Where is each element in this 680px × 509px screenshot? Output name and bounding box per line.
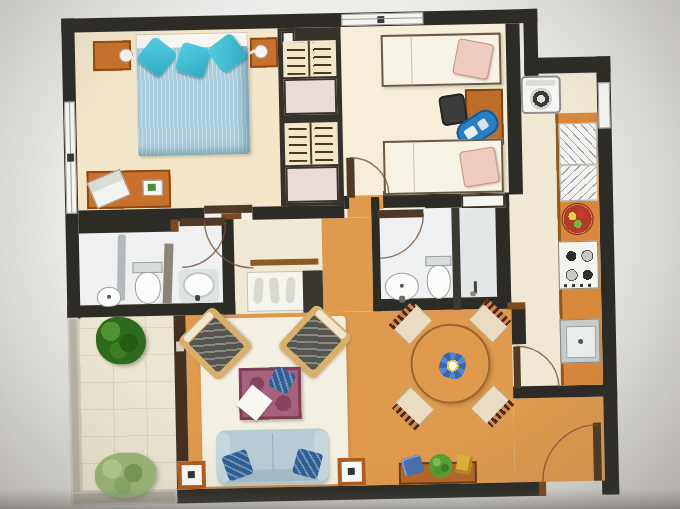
dish-rack-2 <box>559 165 598 202</box>
bath-divider <box>163 243 174 303</box>
wall-bedroom1-bottom-b <box>252 205 344 220</box>
sink-basin <box>566 326 597 359</box>
wardrobe-unit2-shelf <box>285 166 339 203</box>
navy-cushion <box>267 365 297 395</box>
toilet-bathroom2 <box>424 256 451 301</box>
shower-fixture-icon <box>469 281 481 295</box>
hanger-rail-icon <box>289 126 308 162</box>
stove <box>558 241 599 290</box>
kitchen-walkway-ext <box>509 194 525 308</box>
blanket-fold-line <box>411 36 413 84</box>
sofa <box>216 428 329 484</box>
laptop-icon <box>87 169 131 209</box>
double-bed <box>136 32 251 156</box>
tray-faucet-icon <box>195 295 200 301</box>
faucet-icon <box>399 296 405 303</box>
door-leaf-bathroom1 <box>179 217 225 226</box>
wardrobe-unit1-shelf <box>284 78 338 115</box>
toilet-bowl <box>135 272 162 305</box>
wall-kitchen-bottom <box>513 384 617 398</box>
single-bed-bottom <box>383 139 504 196</box>
toilet-bathroom1 <box>131 262 162 305</box>
desk-bedroom1 <box>86 170 171 210</box>
wall-bathroom1-right <box>221 218 235 314</box>
dish-rack-1 <box>559 123 598 166</box>
shoe-icon <box>269 277 280 304</box>
shoe-icon <box>285 277 296 304</box>
drain-dot <box>578 339 583 344</box>
notebook-green-dot <box>148 184 156 191</box>
pillow-pink <box>452 38 494 80</box>
flower-centerpiece <box>436 349 468 381</box>
hanger-rail-icon <box>313 42 332 74</box>
corridor-floor <box>321 217 373 312</box>
trim-bathroom1-opening <box>170 219 178 231</box>
door-leaf-bedroom2 <box>346 158 355 198</box>
kitchen-sink <box>560 319 601 364</box>
shoe-rack <box>247 271 306 312</box>
trim-entry-left <box>539 482 546 496</box>
wardrobe-column <box>277 27 344 206</box>
window-bedroom2 <box>341 12 423 26</box>
bag-stripe <box>477 118 490 131</box>
coffee-table <box>239 367 302 420</box>
washing-machine <box>521 75 562 114</box>
white-cloth <box>236 385 273 422</box>
sofa-seat-split <box>272 433 274 471</box>
washer-controls <box>526 79 556 86</box>
stove-knobs <box>564 284 594 288</box>
single-bed-top <box>381 33 502 88</box>
round-shower-tray <box>178 269 219 304</box>
wardrobe-unit1-hangers <box>283 40 337 77</box>
niche-above-shower <box>461 194 505 209</box>
rail-line <box>309 123 312 165</box>
wall-bottom-right-stub <box>602 480 619 494</box>
trim-kitchen-door <box>507 302 525 309</box>
bag-stripe <box>463 125 479 140</box>
lamp-icon <box>254 44 268 58</box>
door-leaf-entry <box>593 423 602 481</box>
window-left-mullion <box>67 154 74 162</box>
window-bedroom1-left <box>64 102 77 214</box>
side-table-left <box>178 461 207 490</box>
nightstand-left <box>93 40 132 71</box>
pedestal-sink <box>97 287 121 307</box>
side-table-lamp-icon <box>348 468 355 475</box>
floor-plan <box>0 0 680 509</box>
door-leaf-bathroom2 <box>377 209 423 218</box>
wall-bathroom2-top-b <box>425 195 461 208</box>
side-table-lamp-icon <box>188 471 195 478</box>
rail-line <box>308 41 311 77</box>
blanket-fold-line <box>413 142 415 192</box>
door-leaf-bedroom1 <box>204 205 252 214</box>
hanger-rail-icon <box>287 43 306 75</box>
wall-bathroom1-top <box>78 219 177 233</box>
side-table-right <box>337 458 366 487</box>
drain-dot <box>400 284 404 288</box>
pillow-pink <box>459 146 500 187</box>
door-leaf-kitchen <box>513 346 521 388</box>
entry-floor <box>513 397 605 483</box>
wall-bathroom2-right <box>495 194 511 308</box>
notebook-icon <box>143 180 163 196</box>
hanger-rail-icon <box>315 125 334 161</box>
nightstand-right <box>250 37 279 68</box>
toilet-bowl <box>426 265 451 299</box>
drain-dot <box>107 295 111 299</box>
wardrobe-unit2-hangers <box>284 122 338 165</box>
window-kitchen-right <box>598 82 611 128</box>
shoe-icon <box>253 277 264 304</box>
washer-drum-icon <box>530 88 552 110</box>
wall-kitchen-living <box>511 308 526 344</box>
